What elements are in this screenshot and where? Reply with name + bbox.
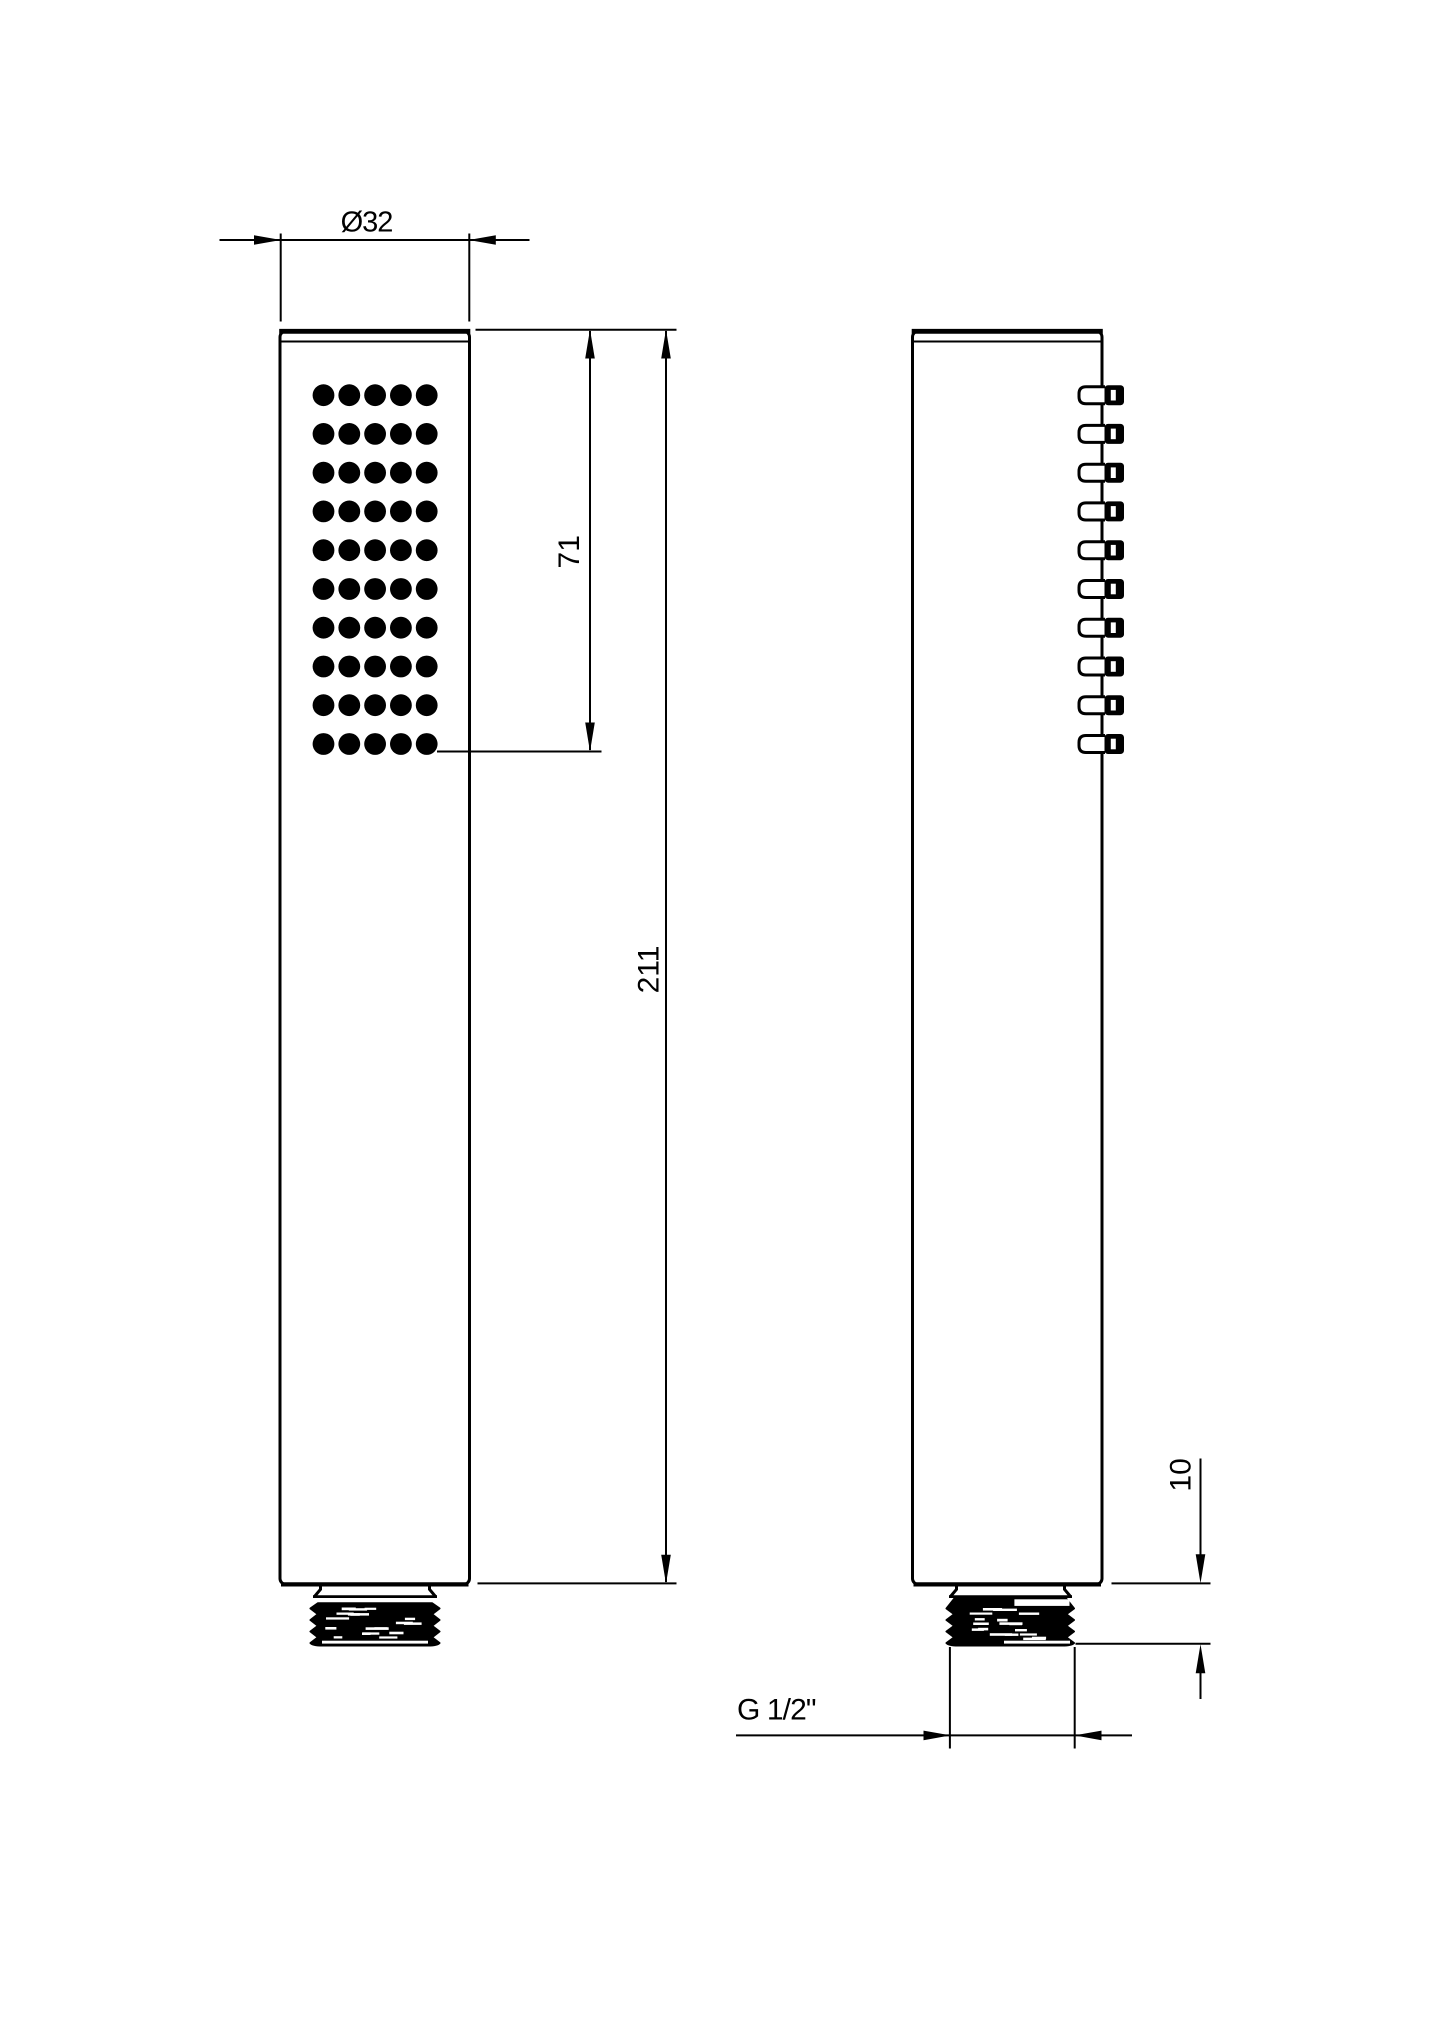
svg-text:211: 211 [633, 946, 666, 994]
svg-text:Ø32: Ø32 [341, 207, 393, 239]
svg-text:71: 71 [553, 535, 586, 568]
svg-text:G 1/2": G 1/2" [737, 1694, 816, 1727]
svg-text:10: 10 [1165, 1458, 1198, 1491]
